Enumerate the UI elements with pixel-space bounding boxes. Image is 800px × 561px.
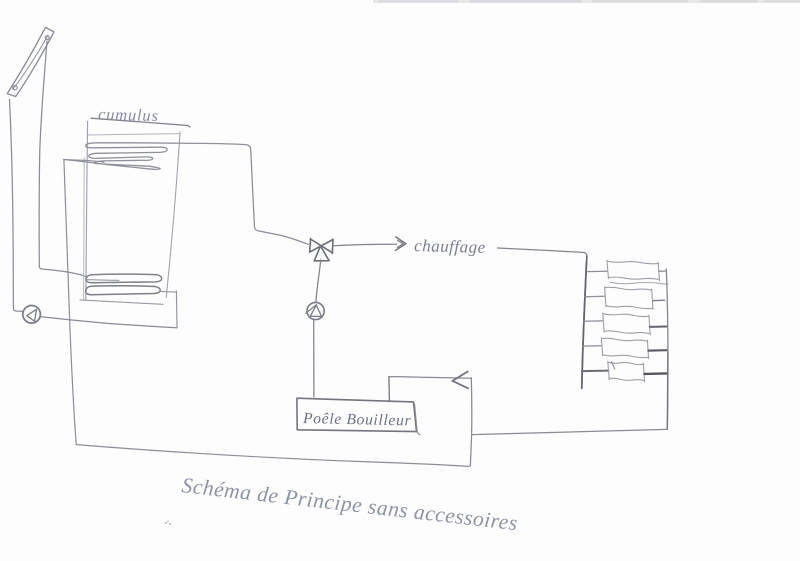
svg-text:Schéma de Principe sans access: Schéma de Principe sans accessoires <box>180 473 519 535</box>
svg-text:Poêle Bouilleur: Poêle Bouilleur <box>302 410 412 429</box>
svg-text:chauffage: chauffage <box>414 236 486 257</box>
